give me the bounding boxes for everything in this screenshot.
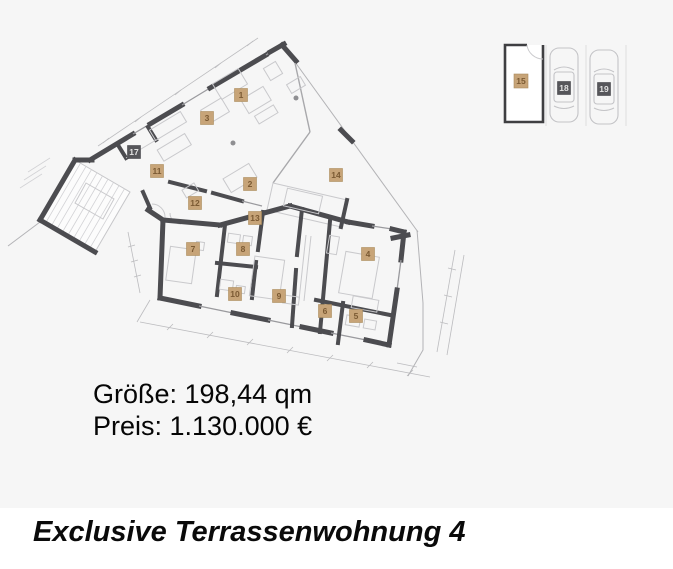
svg-text:15: 15 <box>516 76 526 86</box>
room-label-7: 7 <box>187 243 200 256</box>
room-label-2: 2 <box>244 178 257 191</box>
room-label-1: 1 <box>235 89 248 102</box>
svg-text:14: 14 <box>331 170 341 180</box>
room-label-12: 12 <box>189 197 202 210</box>
svg-text:2: 2 <box>248 179 253 189</box>
size-text: Größe: 198,44 qm <box>93 378 312 410</box>
svg-text:4: 4 <box>366 249 371 259</box>
svg-text:1: 1 <box>239 90 244 100</box>
room-label-13: 13 <box>249 212 262 225</box>
room-label-11: 11 <box>151 165 164 178</box>
bedroom-block-walls <box>160 206 408 345</box>
parking-label-19: 19 <box>598 83 611 96</box>
room-label-5: 5 <box>350 310 363 323</box>
parking-label-18: 18 <box>558 82 571 95</box>
room-label-14: 14 <box>330 169 343 182</box>
listing-title: Exclusive Terrassenwohnung 4 <box>33 516 465 549</box>
svg-text:6: 6 <box>323 306 328 316</box>
svg-text:18: 18 <box>559 83 569 93</box>
listing-page: 1 3 2 11 12 13 14 7 8 9 10 6 5 4 17 15 1… <box>0 0 673 569</box>
svg-text:3: 3 <box>205 113 210 123</box>
svg-text:10: 10 <box>230 289 240 299</box>
room-label-8: 8 <box>237 243 250 256</box>
room-label-9: 9 <box>273 290 286 303</box>
svg-text:7: 7 <box>191 244 196 254</box>
room-label-6: 6 <box>319 305 332 318</box>
svg-text:12: 12 <box>190 198 200 208</box>
room-label-17: 17 <box>128 146 141 159</box>
svg-text:9: 9 <box>277 291 282 301</box>
listing-details: Größe: 198,44 qm Preis: 1.130.000 € <box>93 378 312 442</box>
living-wing-walls <box>90 44 352 227</box>
svg-text:11: 11 <box>153 166 162 176</box>
svg-text:13: 13 <box>250 213 260 223</box>
room-label-3: 3 <box>201 112 214 125</box>
svg-text:17: 17 <box>129 147 139 157</box>
footer-bar: Exclusive Terrassenwohnung 4 <box>0 508 673 569</box>
svg-text:5: 5 <box>354 311 359 321</box>
staircase <box>40 160 130 252</box>
price-text: Preis: 1.130.000 € <box>93 410 312 442</box>
svg-text:8: 8 <box>241 244 246 254</box>
furniture <box>149 61 379 330</box>
room-label-10: 10 <box>229 288 242 301</box>
garage-label-15: 15 <box>514 74 528 88</box>
svg-text:19: 19 <box>599 84 609 94</box>
room-label-4: 4 <box>362 248 375 261</box>
